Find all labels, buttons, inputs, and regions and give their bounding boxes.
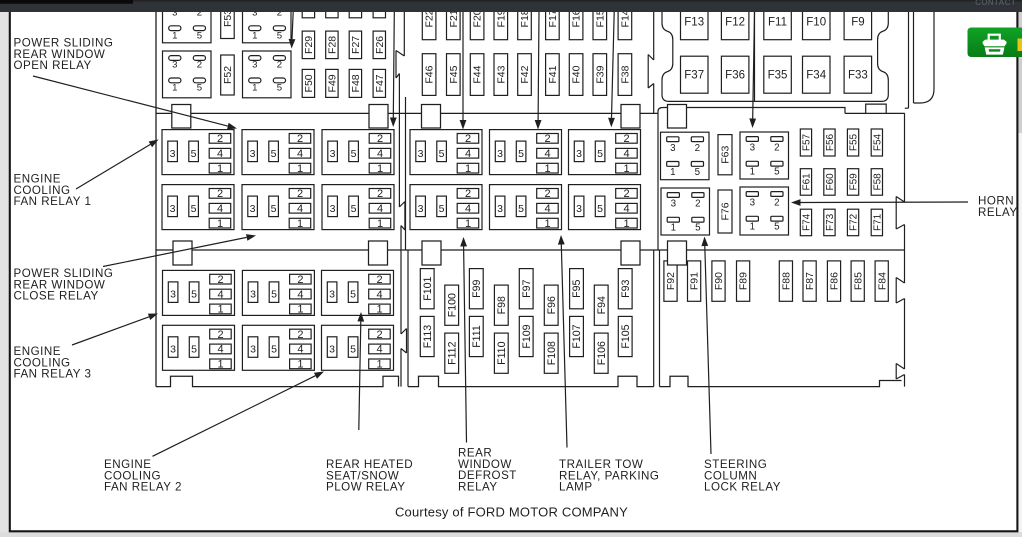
svg-text:1: 1 — [172, 83, 177, 94]
svg-text:2: 2 — [377, 133, 383, 145]
svg-text:2: 2 — [297, 188, 303, 200]
svg-text:4: 4 — [465, 148, 471, 160]
svg-text:2: 2 — [376, 274, 382, 286]
svg-text:FAN RELAY 1: FAN RELAY 1 — [14, 195, 92, 208]
svg-text:5: 5 — [350, 289, 356, 301]
svg-text:3: 3 — [250, 148, 256, 160]
svg-text:3: 3 — [172, 60, 177, 71]
svg-text:F110: F110 — [496, 341, 508, 364]
svg-text:F99: F99 — [471, 279, 483, 297]
svg-text:5: 5 — [518, 203, 524, 215]
svg-text:F58: F58 — [873, 173, 884, 191]
svg-text:Courtesy of FORD MOTOR COMPANY: Courtesy of FORD MOTOR COMPANY — [395, 505, 628, 520]
svg-text:F106: F106 — [596, 341, 608, 365]
svg-text:3: 3 — [330, 148, 336, 160]
svg-text:F55: F55 — [849, 133, 860, 151]
svg-text:F56: F56 — [825, 133, 836, 151]
svg-text:1: 1 — [297, 163, 303, 175]
svg-text:5: 5 — [271, 203, 277, 215]
svg-text:3: 3 — [170, 289, 176, 301]
svg-text:F44: F44 — [472, 65, 484, 83]
svg-text:1: 1 — [465, 218, 471, 230]
svg-text:1: 1 — [217, 304, 223, 316]
svg-text:1: 1 — [252, 30, 257, 41]
svg-text:F36: F36 — [725, 70, 745, 82]
svg-text:F10: F10 — [806, 17, 826, 29]
svg-text:1: 1 — [172, 30, 177, 41]
svg-text:F60: F60 — [825, 173, 836, 191]
svg-text:F43: F43 — [495, 65, 507, 83]
svg-text:5: 5 — [277, 83, 282, 94]
svg-text:3: 3 — [497, 148, 503, 160]
svg-text:4: 4 — [297, 148, 303, 160]
svg-text:2: 2 — [217, 133, 223, 145]
svg-text:2: 2 — [217, 188, 223, 200]
svg-text:2: 2 — [376, 329, 382, 341]
svg-text:F63: F63 — [720, 145, 732, 163]
svg-text:5: 5 — [197, 30, 202, 41]
svg-text:2: 2 — [695, 143, 700, 154]
svg-text:F35: F35 — [768, 70, 788, 82]
svg-text:4: 4 — [376, 344, 382, 356]
svg-text:4: 4 — [297, 344, 303, 356]
svg-text:F12: F12 — [725, 17, 745, 29]
svg-text:3: 3 — [329, 289, 335, 301]
svg-text:3: 3 — [170, 148, 176, 160]
svg-text:3: 3 — [418, 148, 424, 160]
svg-text:F88: F88 — [781, 272, 793, 290]
svg-text:LOCK RELAY: LOCK RELAY — [704, 481, 781, 494]
svg-text:1: 1 — [217, 218, 223, 230]
svg-text:F42: F42 — [519, 65, 531, 83]
svg-text:RELAY: RELAY — [978, 206, 1018, 219]
svg-text:F54: F54 — [873, 133, 884, 151]
svg-text:2: 2 — [623, 188, 629, 200]
svg-text:5: 5 — [350, 344, 356, 356]
svg-text:RELAY: RELAY — [458, 480, 498, 493]
svg-text:F9: F9 — [851, 17, 864, 29]
svg-text:4: 4 — [217, 203, 223, 215]
svg-text:4: 4 — [465, 203, 471, 215]
svg-text:5: 5 — [191, 344, 197, 356]
svg-text:1: 1 — [217, 359, 223, 371]
svg-text:5: 5 — [197, 83, 202, 94]
svg-text:F52: F52 — [222, 66, 234, 84]
svg-text:2: 2 — [297, 133, 303, 145]
svg-text:2: 2 — [544, 133, 550, 145]
svg-text:F112: F112 — [446, 341, 458, 364]
svg-text:F91: F91 — [689, 272, 701, 290]
svg-text:F97: F97 — [521, 279, 533, 297]
svg-text:F111: F111 — [471, 325, 483, 348]
svg-text:F90: F90 — [713, 272, 725, 290]
svg-text:4: 4 — [376, 289, 382, 301]
svg-text:5: 5 — [695, 223, 701, 234]
svg-text:1: 1 — [377, 218, 383, 230]
svg-text:2: 2 — [465, 133, 471, 145]
svg-text:PLOW RELAY: PLOW RELAY — [326, 481, 406, 494]
svg-text:F13: F13 — [684, 17, 704, 29]
svg-text:5: 5 — [191, 203, 197, 215]
svg-text:F49: F49 — [327, 74, 339, 92]
svg-text:4: 4 — [544, 148, 550, 160]
svg-text:4: 4 — [377, 148, 383, 160]
svg-text:F105: F105 — [620, 324, 632, 348]
svg-text:2: 2 — [774, 198, 779, 209]
svg-text:F71: F71 — [873, 213, 884, 231]
svg-text:3: 3 — [576, 148, 582, 160]
svg-text:5: 5 — [774, 222, 780, 233]
svg-text:1: 1 — [544, 218, 550, 230]
svg-text:F61: F61 — [802, 173, 813, 191]
svg-text:5: 5 — [774, 167, 780, 178]
svg-text:F37: F37 — [684, 70, 704, 82]
svg-text:2: 2 — [217, 274, 223, 286]
svg-text:5: 5 — [191, 148, 197, 160]
svg-text:LAMP: LAMP — [559, 481, 593, 494]
svg-text:F72: F72 — [849, 213, 860, 231]
svg-text:1: 1 — [670, 167, 675, 178]
svg-text:2: 2 — [465, 188, 471, 200]
svg-text:4: 4 — [377, 203, 383, 215]
svg-text:4: 4 — [544, 203, 550, 215]
svg-text:F39: F39 — [594, 65, 606, 83]
svg-text:F92: F92 — [665, 272, 677, 290]
svg-text:4: 4 — [297, 289, 303, 301]
svg-text:5: 5 — [351, 203, 357, 215]
svg-text:1: 1 — [671, 223, 676, 234]
svg-text:F98: F98 — [496, 296, 508, 314]
svg-text:3: 3 — [576, 203, 582, 215]
svg-text:1: 1 — [750, 167, 755, 178]
svg-text:F86: F86 — [829, 272, 841, 290]
svg-text:F85: F85 — [852, 272, 864, 290]
svg-text:1: 1 — [376, 304, 382, 316]
svg-text:2: 2 — [377, 188, 383, 200]
svg-text:1: 1 — [217, 163, 223, 175]
svg-text:F109: F109 — [521, 324, 533, 348]
svg-text:F108: F108 — [546, 341, 558, 365]
svg-text:F93: F93 — [620, 279, 632, 297]
svg-text:F26: F26 — [374, 36, 386, 54]
svg-text:4: 4 — [297, 203, 303, 215]
svg-text:1: 1 — [465, 163, 471, 175]
svg-text:F34: F34 — [806, 70, 826, 82]
svg-text:5: 5 — [597, 148, 603, 160]
svg-text:3: 3 — [750, 143, 756, 154]
svg-text:F28: F28 — [327, 36, 339, 54]
svg-text:5: 5 — [518, 148, 524, 160]
svg-text:F59: F59 — [849, 173, 860, 191]
svg-text:F29: F29 — [303, 36, 315, 54]
svg-text:3: 3 — [418, 203, 424, 215]
svg-text:F74: F74 — [802, 213, 813, 231]
svg-text:5: 5 — [351, 148, 357, 160]
svg-text:FAN RELAY 3: FAN RELAY 3 — [14, 368, 92, 381]
svg-text:F87: F87 — [804, 272, 816, 290]
svg-text:F96: F96 — [546, 296, 558, 314]
svg-text:2: 2 — [217, 329, 223, 341]
svg-text:3: 3 — [250, 344, 256, 356]
svg-text:2: 2 — [695, 199, 700, 210]
svg-text:2: 2 — [277, 60, 282, 71]
svg-text:F27: F27 — [350, 36, 362, 54]
svg-text:4: 4 — [217, 344, 223, 356]
svg-text:3: 3 — [170, 344, 176, 356]
svg-text:F95: F95 — [571, 279, 583, 297]
svg-text:3: 3 — [329, 344, 335, 356]
svg-text:1: 1 — [252, 83, 257, 94]
svg-text:2: 2 — [197, 60, 202, 71]
svg-text:3: 3 — [170, 203, 176, 215]
svg-text:2: 2 — [623, 133, 629, 145]
svg-text:4: 4 — [623, 148, 629, 160]
svg-text:5: 5 — [271, 344, 277, 356]
svg-text:1: 1 — [377, 163, 383, 175]
svg-text:FAN RELAY 2: FAN RELAY 2 — [104, 481, 182, 494]
svg-text:F94: F94 — [596, 296, 608, 314]
svg-text:F50: F50 — [303, 74, 315, 92]
svg-text:F11: F11 — [768, 17, 787, 29]
svg-text:F33: F33 — [848, 70, 868, 82]
svg-text:3: 3 — [750, 198, 756, 209]
svg-text:F57: F57 — [802, 133, 813, 151]
svg-text:3: 3 — [330, 203, 336, 215]
svg-text:1: 1 — [750, 222, 755, 233]
svg-text:CLOSE RELAY: CLOSE RELAY — [14, 290, 99, 303]
svg-text:2: 2 — [544, 188, 550, 200]
svg-text:5: 5 — [271, 289, 277, 301]
svg-text:3: 3 — [497, 203, 503, 215]
svg-text:4: 4 — [217, 148, 223, 160]
svg-text:F113: F113 — [422, 325, 434, 348]
svg-text:4: 4 — [623, 203, 629, 215]
svg-text:4: 4 — [217, 289, 223, 301]
svg-text:1: 1 — [297, 218, 303, 230]
svg-text:1: 1 — [623, 218, 629, 230]
svg-text:2: 2 — [774, 143, 779, 154]
svg-text:F48: F48 — [350, 74, 362, 92]
svg-text:5: 5 — [191, 289, 197, 301]
svg-text:F101: F101 — [422, 277, 434, 301]
svg-text:1: 1 — [376, 359, 382, 371]
svg-text:3: 3 — [671, 199, 677, 210]
svg-text:CONTACT: CONTACT — [975, 0, 1016, 7]
svg-text:F45: F45 — [448, 65, 460, 83]
svg-text:OPEN RELAY: OPEN RELAY — [14, 59, 92, 72]
svg-text:3: 3 — [670, 143, 676, 154]
svg-text:3: 3 — [250, 289, 256, 301]
svg-text:F46: F46 — [424, 65, 436, 83]
svg-text:1: 1 — [623, 163, 629, 175]
svg-text:5: 5 — [277, 30, 282, 41]
svg-text:2: 2 — [297, 274, 303, 286]
svg-text:5: 5 — [597, 203, 603, 215]
svg-text:F76: F76 — [720, 202, 732, 220]
svg-text:3: 3 — [250, 203, 256, 215]
svg-text:3: 3 — [252, 60, 257, 71]
svg-text:F107: F107 — [571, 324, 583, 348]
svg-text:F38: F38 — [620, 65, 632, 83]
svg-text:F73: F73 — [825, 213, 836, 231]
svg-text:F84: F84 — [876, 272, 888, 290]
svg-text:2: 2 — [297, 329, 303, 341]
svg-text:F89: F89 — [738, 272, 750, 290]
svg-text:F100: F100 — [446, 293, 458, 317]
svg-text:1: 1 — [297, 359, 303, 371]
svg-text:1: 1 — [544, 163, 550, 175]
svg-text:5: 5 — [439, 148, 445, 160]
svg-text:F40: F40 — [571, 65, 583, 83]
svg-text:5: 5 — [695, 167, 701, 178]
svg-text:5: 5 — [439, 203, 445, 215]
svg-text:5: 5 — [271, 148, 277, 160]
svg-text:1: 1 — [297, 304, 303, 316]
svg-text:F41: F41 — [547, 65, 559, 83]
svg-text:F47: F47 — [374, 74, 386, 92]
